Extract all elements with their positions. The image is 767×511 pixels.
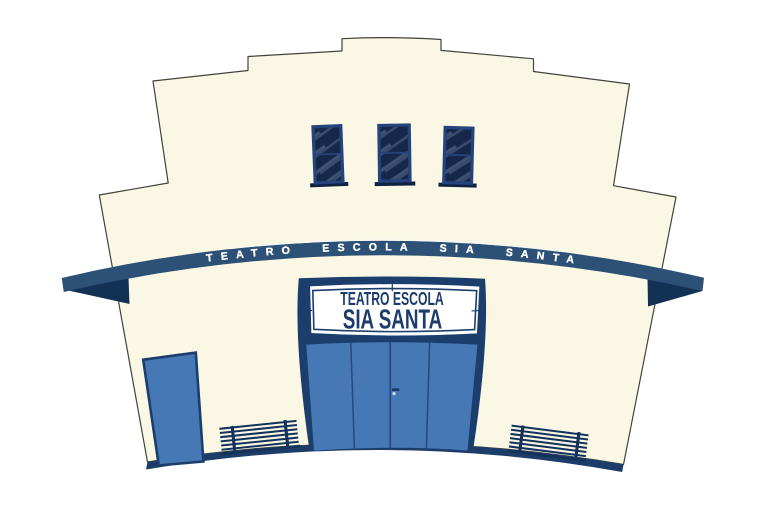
svg-text:SIA SANTA: SIA SANTA bbox=[343, 303, 443, 334]
